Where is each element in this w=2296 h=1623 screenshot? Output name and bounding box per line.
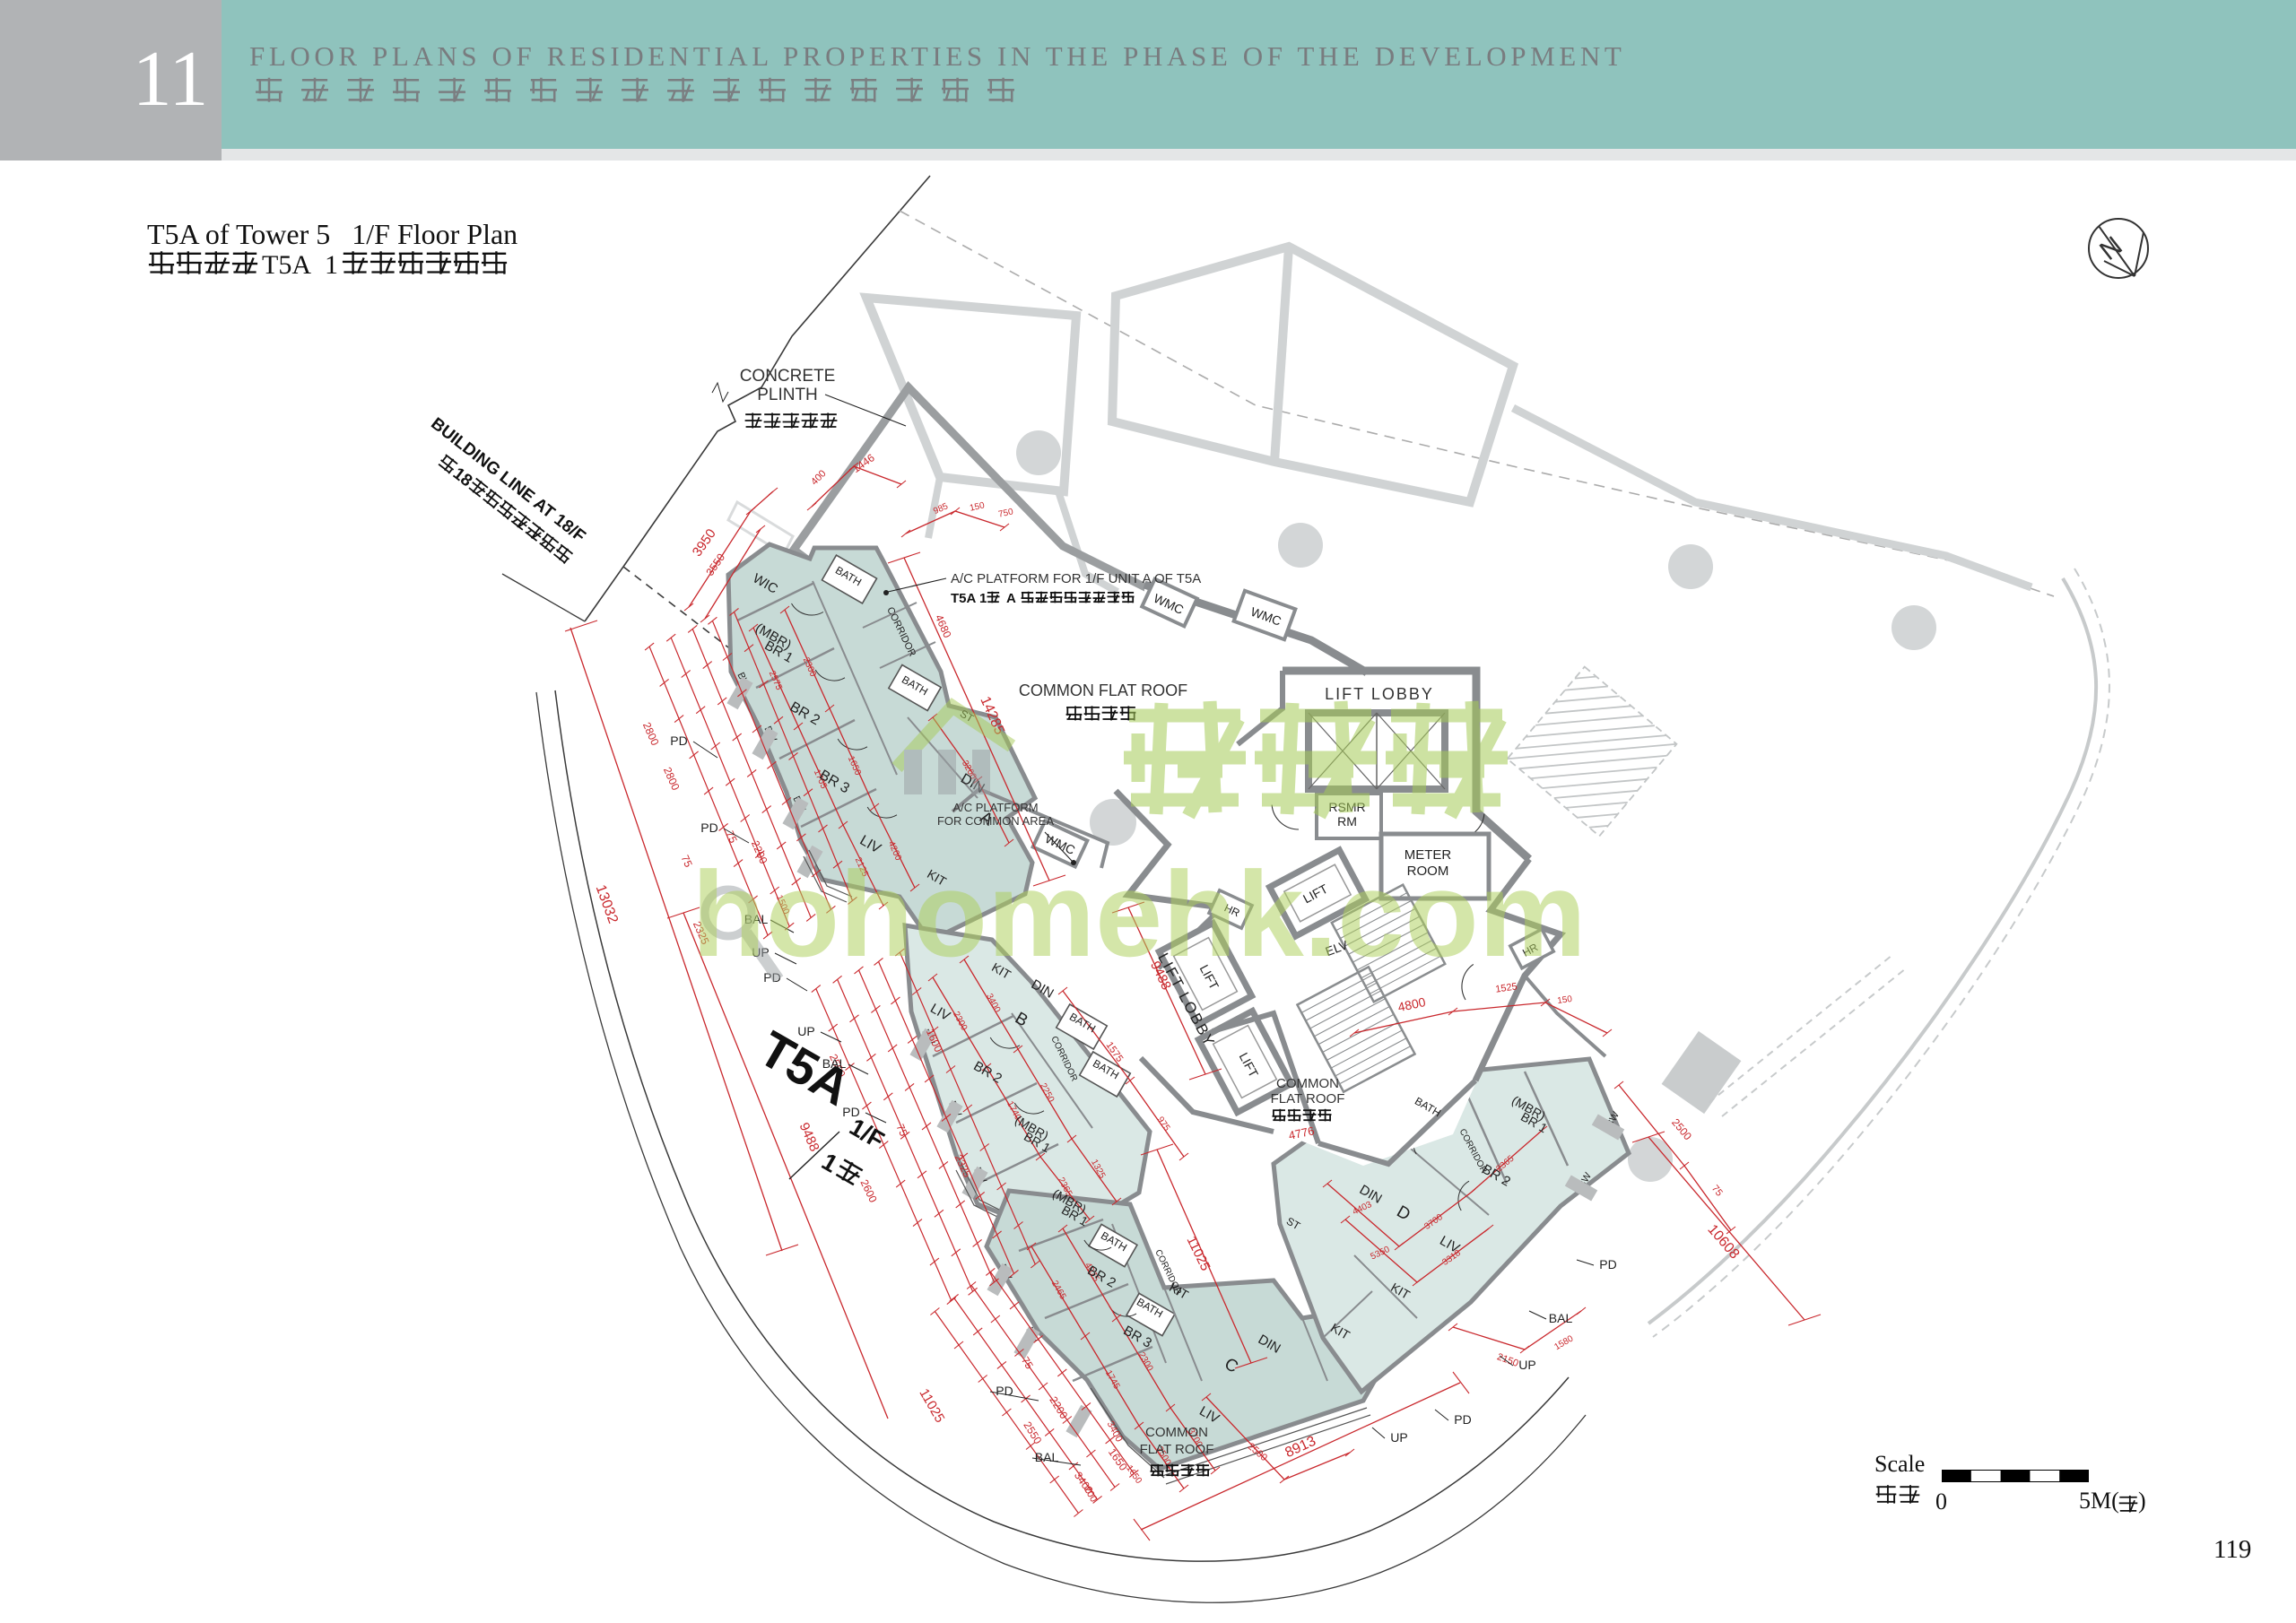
svg-text:150: 150 — [969, 500, 986, 513]
svg-text:75: 75 — [894, 1122, 910, 1138]
svg-text:UP: UP — [1518, 1358, 1535, 1372]
svg-text:T5A 1: T5A 1 — [951, 591, 987, 606]
svg-text:3550: 3550 — [703, 551, 727, 577]
svg-text:PD: PD — [700, 820, 717, 835]
svg-text:150: 150 — [1557, 994, 1573, 1006]
svg-text:2800: 2800 — [640, 720, 662, 747]
svg-text:RM: RM — [1337, 814, 1357, 829]
svg-text:LIFT LOBBY: LIFT LOBBY — [1325, 685, 1434, 703]
svg-text:1580: 1580 — [1552, 1333, 1575, 1352]
svg-text:A/C PLATFORM: A/C PLATFORM — [952, 801, 1038, 814]
svg-text:2150: 2150 — [1495, 1351, 1519, 1369]
svg-text:13032: 13032 — [593, 883, 621, 926]
svg-text:9488: 9488 — [796, 1120, 822, 1153]
svg-text:1: 1 — [817, 1148, 842, 1177]
svg-text:2600: 2600 — [857, 1177, 879, 1204]
svg-text:FOR COMMON AREA: FOR COMMON AREA — [937, 814, 1054, 828]
svg-text:975: 975 — [1155, 1115, 1172, 1133]
svg-text:A: A — [1006, 591, 1016, 606]
svg-text:750: 750 — [997, 507, 1014, 519]
svg-text:COMMON FLAT ROOF: COMMON FLAT ROOF — [1019, 681, 1187, 699]
svg-text:2500: 2500 — [1669, 1116, 1694, 1143]
svg-text:10608: 10608 — [1704, 1222, 1742, 1263]
svg-text:UP: UP — [1390, 1430, 1407, 1445]
svg-text:A/C PLATFORM FOR 1/F UNIT: A/C PLATFORM FOR 1/F UNIT A OF T5A — [951, 571, 1201, 586]
svg-text:75: 75 — [1019, 1355, 1036, 1372]
svg-text:4680: 4680 — [933, 612, 954, 639]
svg-text:1: 1 — [325, 250, 338, 280]
svg-text:FLAT ROOF: FLAT ROOF — [1140, 1442, 1214, 1457]
svg-text:2800: 2800 — [661, 765, 683, 792]
svg-text:PD: PD — [1599, 1257, 1616, 1271]
svg-text:200: 200 — [1082, 1485, 1100, 1505]
svg-text:T5A: T5A — [262, 250, 311, 280]
svg-text:75: 75 — [724, 829, 740, 845]
svg-text:2550: 2550 — [1021, 1419, 1044, 1446]
svg-text:FLAT ROOF: FLAT ROOF — [1271, 1091, 1345, 1107]
svg-text:1/F: 1/F — [845, 1113, 889, 1153]
svg-text:2200: 2200 — [1047, 1394, 1070, 1421]
svg-text:1650: 1650 — [1124, 1463, 1144, 1486]
svg-text:hohomehk.com: hohomehk.com — [691, 846, 1587, 982]
svg-text:PD: PD — [670, 733, 687, 748]
svg-text:1446: 1446 — [850, 451, 877, 475]
svg-text:PLINTH: PLINTH — [757, 386, 818, 404]
svg-text:BAL: BAL — [1549, 1311, 1573, 1325]
svg-text:75: 75 — [1709, 1184, 1725, 1199]
svg-text:PD: PD — [1454, 1412, 1471, 1427]
svg-text:11025: 11025 — [1184, 1234, 1213, 1273]
svg-text:BAL: BAL — [1035, 1450, 1059, 1464]
svg-text:COMMON: COMMON — [1145, 1425, 1208, 1440]
svg-text:COMMON: COMMON — [1276, 1076, 1339, 1091]
svg-text:400: 400 — [809, 468, 828, 487]
svg-text:11025: 11025 — [916, 1386, 947, 1426]
svg-text:CONCRETE: CONCRETE — [740, 367, 836, 386]
svg-text:18: 18 — [449, 464, 476, 491]
